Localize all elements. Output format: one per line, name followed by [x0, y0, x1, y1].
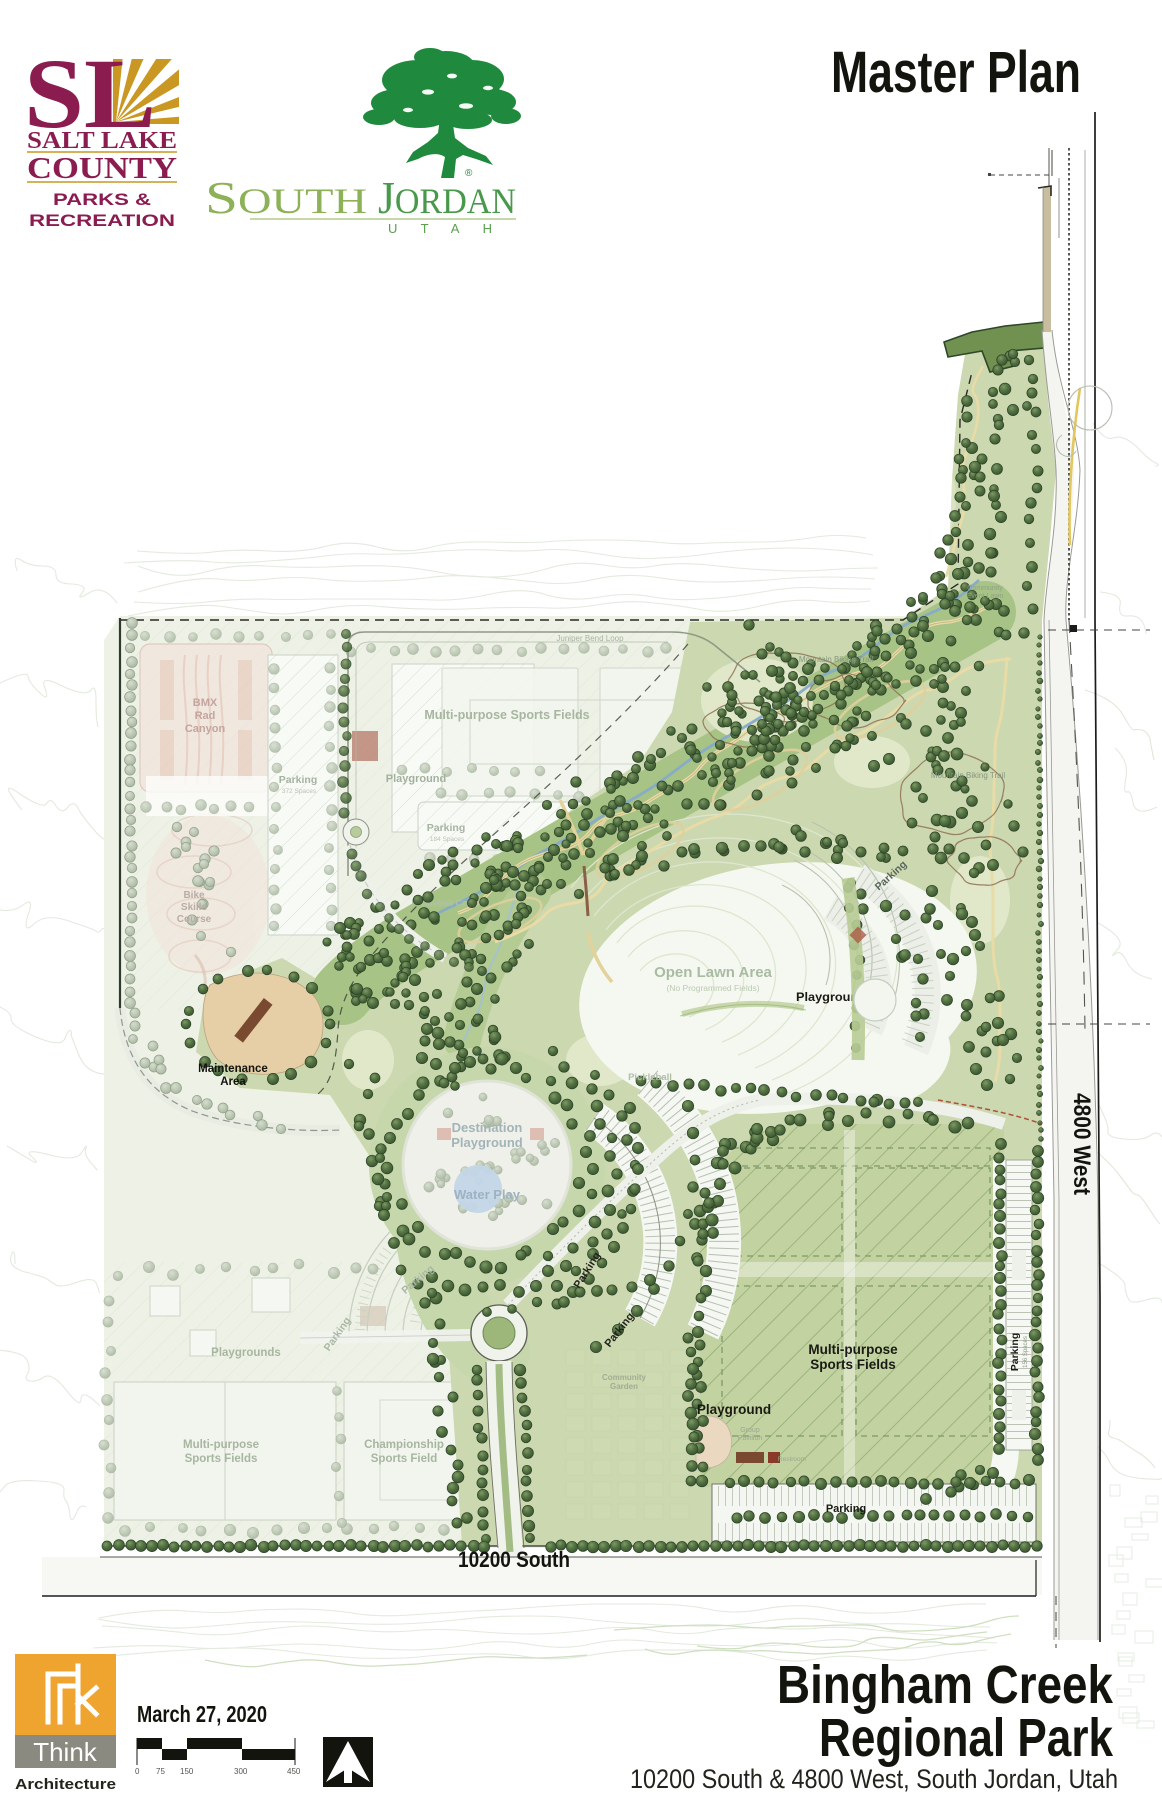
svg-text:Regional Park: Regional Park	[819, 1708, 1114, 1768]
svg-text:10200 South: 10200 South	[458, 1547, 570, 1572]
svg-text:BMX: BMX	[193, 697, 218, 709]
svg-text:Bingham Creek: Bingham Creek	[777, 1655, 1114, 1715]
svg-text:COUNTY: COUNTY	[27, 150, 177, 185]
svg-text:Multi-purpose: Multi-purpose	[808, 1342, 898, 1357]
svg-text:Skills: Skills	[181, 902, 208, 913]
svg-text:Sports Fields: Sports Fields	[185, 1453, 258, 1465]
svg-text:Championship: Championship	[364, 1439, 444, 1451]
svg-text:Multi-purpose Sports Fields: Multi-purpose Sports Fields	[424, 708, 589, 722]
svg-text:Playgrounds: Playgrounds	[211, 1347, 281, 1359]
svg-text:Mountain Biking Trail: Mountain Biking Trail	[799, 655, 873, 664]
svg-text:Course: Course	[177, 914, 212, 925]
svg-text:Sports Field: Sports Field	[371, 1453, 437, 1465]
svg-text:Think: Think	[33, 1737, 98, 1767]
svg-text:372 Spaces: 372 Spaces	[282, 788, 317, 795]
svg-text:UTAH: UTAH	[388, 221, 514, 236]
svg-text:(No Programmed Fields): (No Programmed Fields)	[666, 983, 759, 993]
svg-text:Garden: Garden	[610, 1382, 638, 1391]
svg-text:Pickleball: Pickleball	[628, 1072, 672, 1083]
svg-text:Playground: Playground	[697, 1402, 771, 1417]
svg-text:Community: Community	[602, 1373, 647, 1382]
svg-text:Parking: Parking	[427, 822, 466, 834]
svg-text:Area: Area	[220, 1076, 246, 1088]
svg-text:Destination: Destination	[452, 1120, 523, 1135]
svg-text:Parking: Parking	[279, 774, 318, 786]
svg-text:Pavilion: Pavilion	[738, 1435, 763, 1442]
svg-text:0: 0	[135, 1767, 140, 1776]
svg-text:Rad: Rad	[195, 710, 216, 722]
svg-text:Master Plan: Master Plan	[831, 40, 1081, 105]
svg-text:Mountain Biking Trail: Mountain Biking Trail	[931, 771, 1005, 780]
svg-text:March 27, 2020: March 27, 2020	[137, 1701, 267, 1727]
svg-text:450: 450	[287, 1767, 301, 1776]
svg-text:Maintenance: Maintenance	[198, 1063, 268, 1075]
svg-text:150: 150	[180, 1767, 194, 1776]
svg-text:RECREATION: RECREATION	[29, 211, 175, 230]
svg-text:184 Spaces: 184 Spaces	[430, 836, 465, 843]
svg-text:Parking: Parking	[1009, 1333, 1021, 1372]
svg-text:10200 South & 4800 West, South: 10200 South & 4800 West, South Jordan, U…	[630, 1764, 1118, 1794]
svg-text:Community: Community	[967, 585, 1003, 592]
svg-text:Juniper Bend Loop: Juniper Bend Loop	[556, 634, 624, 643]
svg-text:Playground: Playground	[451, 1135, 523, 1150]
svg-text:Architecture: Architecture	[15, 1777, 116, 1793]
svg-text:Open Lawn Area: Open Lawn Area	[654, 964, 772, 981]
svg-text:300: 300	[234, 1767, 248, 1776]
svg-text:4800 West: 4800 West	[1068, 1093, 1095, 1195]
svg-text:Event Lawn: Event Lawn	[967, 593, 1004, 600]
svg-text:156 Spaces: 156 Spaces	[1023, 1336, 1029, 1368]
svg-text:Playground: Playground	[386, 773, 447, 785]
svg-text:Sports Fields: Sports Fields	[810, 1357, 896, 1372]
svg-text:Multi-purpose: Multi-purpose	[183, 1439, 259, 1451]
svg-text:75: 75	[156, 1767, 165, 1776]
svg-text:®: ®	[465, 168, 473, 179]
svg-text:Parking: Parking	[826, 1503, 866, 1515]
svg-text:Canyon: Canyon	[185, 723, 226, 735]
svg-text:Restroom: Restroom	[778, 1456, 806, 1463]
svg-text:Group: Group	[740, 1427, 760, 1434]
svg-text:PARKS &: PARKS &	[53, 190, 151, 209]
svg-text:Bike: Bike	[183, 890, 205, 901]
svg-text:Water Play: Water Play	[454, 1187, 521, 1202]
